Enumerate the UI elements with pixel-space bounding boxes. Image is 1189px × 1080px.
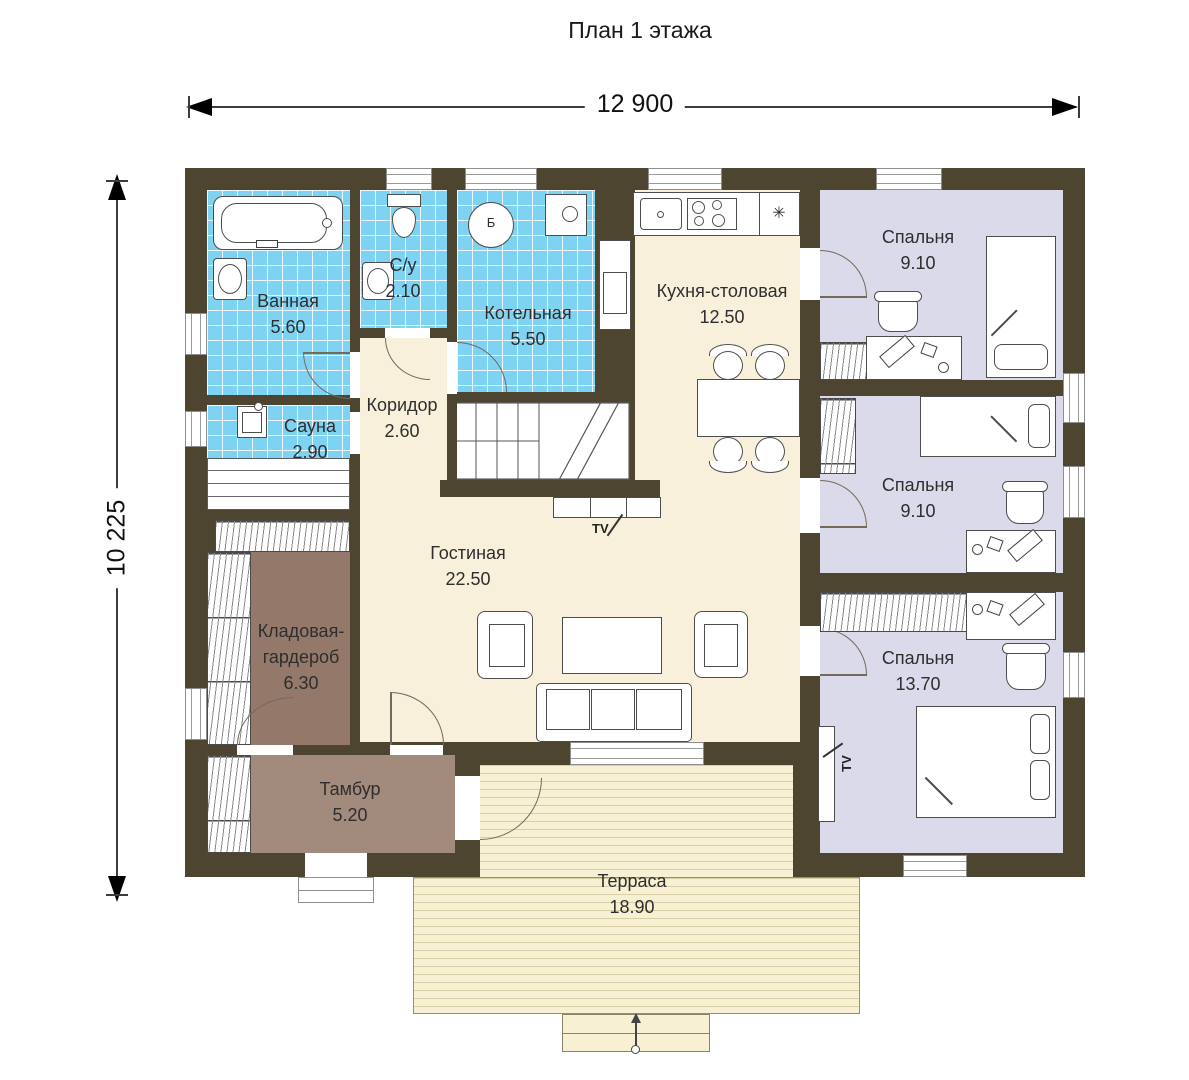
floor-plan: План 1 этажа 12 900 10 225	[0, 0, 1189, 1080]
label-tambour: Тамбур 5.20	[319, 776, 380, 828]
armchair-cushion	[489, 624, 525, 667]
wardrobe-icon	[820, 592, 970, 632]
label-bedroom2: Спальня 9.10	[882, 472, 954, 524]
arrow-down-icon	[108, 876, 126, 902]
dimension-width-label: 12 900	[585, 90, 685, 119]
office-chair-icon	[1006, 486, 1044, 524]
window-living-terrace	[570, 742, 704, 765]
tv-label: TV	[839, 755, 854, 772]
terrace-entry-arrowhead-icon	[631, 1013, 641, 1023]
door-leaf	[390, 692, 392, 745]
pillow-icon	[1030, 714, 1050, 754]
sofa-cushion	[546, 689, 590, 730]
label-kitchen: Кухня-столовая 12.50	[657, 278, 788, 330]
dimension-height-label: 10 225	[103, 488, 132, 588]
label-bathroom: Ванная 5.60	[257, 288, 319, 340]
door-opening-sauna	[350, 412, 360, 454]
storage-left-shelf	[207, 552, 251, 745]
label-terrace: Терраса 18.90	[597, 868, 666, 920]
arrow-up-icon	[108, 174, 126, 200]
dining-chair-icon	[713, 351, 743, 380]
wardrobe-icon	[820, 342, 868, 380]
coffee-table-icon	[562, 617, 662, 674]
sauna-benches	[207, 458, 350, 510]
dimension-tick	[188, 96, 190, 118]
desk-lamp-icon	[938, 362, 949, 373]
door-leaf	[303, 352, 350, 354]
entry-door-opening	[305, 853, 367, 877]
dimension-tick	[106, 180, 128, 182]
armchair-cushion	[704, 624, 738, 667]
window	[903, 855, 967, 877]
bathtub-drain-icon	[322, 218, 332, 228]
label-corridor: Коридор 2.60	[366, 392, 437, 444]
terrace-entry-point-icon	[631, 1045, 640, 1054]
storage-top-shelf	[215, 520, 350, 552]
wall-tv	[440, 480, 660, 497]
pillow-icon	[1028, 404, 1050, 448]
wall	[350, 520, 360, 745]
desk-lamp-icon	[972, 544, 983, 555]
window	[876, 168, 942, 190]
desk-lamp-icon	[972, 604, 983, 615]
dimension-tick	[1078, 96, 1080, 118]
burner-icon	[694, 216, 704, 226]
kitchen-sink-drain	[657, 211, 664, 218]
window	[648, 168, 722, 190]
label-living: Гостиная 22.50	[430, 540, 506, 592]
tv-cabinet-icon	[818, 726, 835, 822]
window	[386, 168, 432, 190]
door-leaf	[820, 526, 867, 528]
door-leaf	[820, 674, 867, 676]
bathtub-faucet-icon	[256, 240, 278, 248]
wall	[185, 510, 350, 520]
sink-bowl	[218, 264, 242, 294]
tv-stand-icon	[553, 497, 661, 518]
door-opening-bathroom	[350, 352, 360, 398]
burner-icon	[692, 201, 705, 214]
door-leaf	[820, 296, 867, 298]
window	[1063, 466, 1085, 518]
window	[1063, 373, 1085, 423]
door-opening-wc	[385, 328, 430, 338]
boiler-label: Б	[487, 214, 496, 233]
wall	[820, 380, 1063, 396]
pillow-icon	[1030, 760, 1050, 800]
label-storage: Кладовая- гардероб 6.30	[258, 618, 345, 696]
bathtub-inner	[221, 203, 327, 243]
office-chair-icon	[1006, 648, 1046, 690]
window	[465, 168, 537, 190]
door-opening-boiler	[447, 342, 457, 394]
dimension-tick	[106, 894, 128, 896]
door-opening-bedroom3	[800, 626, 820, 676]
sofa-cushion	[636, 689, 682, 730]
sauna-stove-chimney-icon	[254, 402, 263, 411]
pillow-icon	[994, 344, 1048, 370]
entry-porch-steps	[298, 877, 374, 903]
office-chair-icon	[878, 296, 918, 332]
door-opening-storage	[237, 745, 293, 755]
label-sauna: Сауна 2.90	[284, 413, 336, 465]
window	[185, 411, 207, 447]
window	[185, 313, 207, 355]
burner-icon	[712, 200, 722, 210]
oven-icon	[603, 272, 627, 314]
wall	[207, 395, 350, 405]
dining-table-icon	[697, 379, 800, 437]
door-opening-tambour-terrace	[455, 776, 480, 840]
window	[1063, 652, 1085, 698]
door-opening-tambour-living	[390, 745, 443, 755]
staircase	[455, 402, 630, 480]
door-opening-bedroom2	[800, 478, 820, 533]
wall	[820, 573, 1063, 592]
arrow-right-icon	[1052, 98, 1078, 116]
wall	[447, 190, 457, 480]
burner-icon	[712, 214, 725, 227]
sofa-cushion	[591, 689, 635, 730]
label-wc: С/у 2.10	[385, 252, 420, 304]
page-title: План 1 этажа	[568, 14, 712, 47]
label-bedroom3: Спальня 13.70	[882, 645, 954, 697]
wardrobe-icon	[820, 398, 856, 474]
wall	[630, 402, 635, 480]
tambour-left-shelf	[207, 755, 251, 853]
fridge-symbol: ✳	[772, 202, 785, 225]
dining-chair-icon	[755, 351, 785, 380]
toilet-tank-icon	[387, 194, 421, 207]
sauna-stove-inner	[242, 412, 262, 433]
door-opening-bedroom1	[800, 248, 820, 300]
label-bedroom1: Спальня 9.10	[882, 224, 954, 276]
label-boiler: Котельная 5.50	[484, 300, 571, 352]
water-heater-dial-icon	[562, 206, 578, 222]
window	[185, 688, 207, 740]
